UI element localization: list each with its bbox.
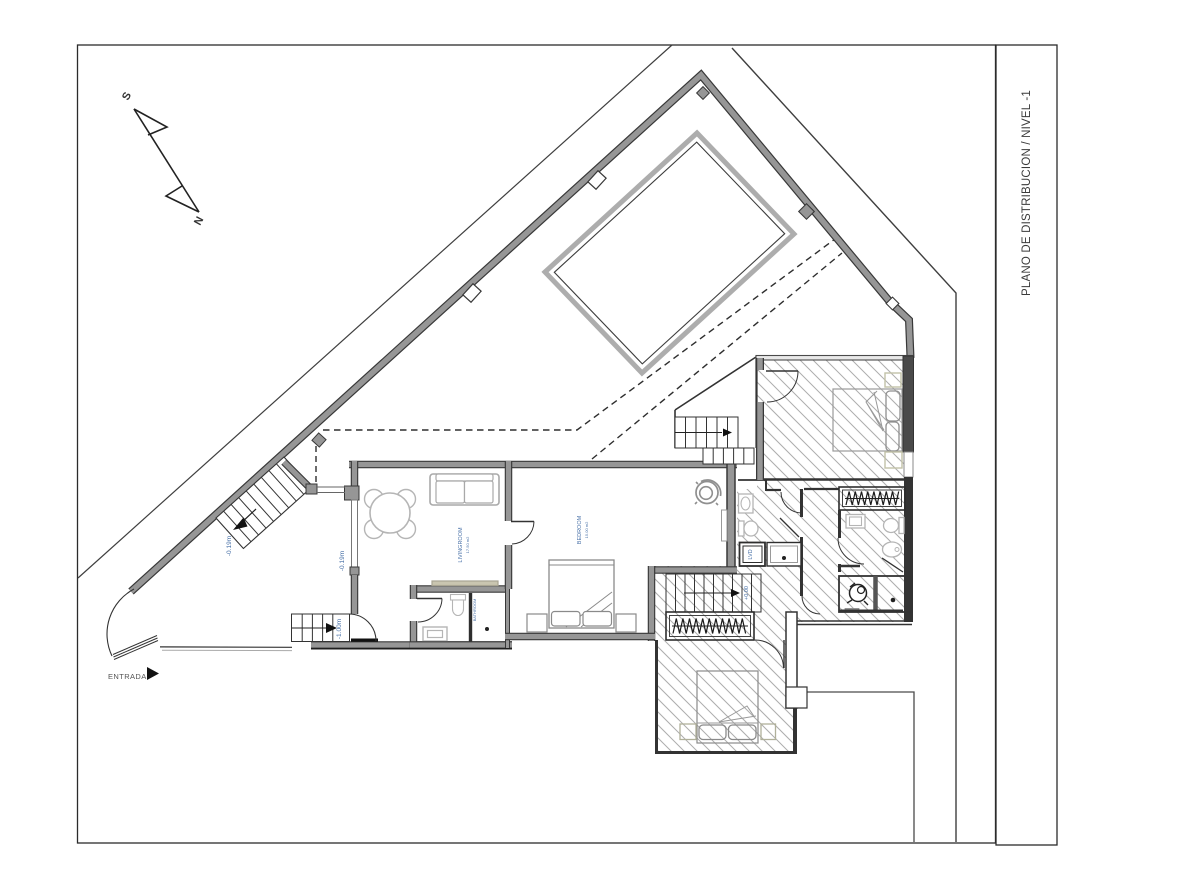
- svg-text:LVD: LVD: [748, 549, 754, 559]
- svg-text:LIVINGROOM: LIVINGROOM: [458, 527, 464, 563]
- svg-text:ENTRADA: ENTRADA: [108, 672, 147, 681]
- svg-text:+0.00: +0.00: [744, 586, 750, 600]
- svg-text:-0.19m: -0.19m: [339, 551, 346, 571]
- svg-text:-0.19m: -0.19m: [226, 536, 233, 556]
- svg-text:17.50 m2: 17.50 m2: [465, 536, 470, 553]
- svg-text:-1.00m: -1.00m: [336, 619, 343, 639]
- svg-text:PLANO DE DISTRIBUCION / NIVEL: PLANO DE DISTRIBUCION / NIVEL -1: [1021, 90, 1033, 296]
- svg-text:BEDROOM: BEDROOM: [577, 515, 583, 544]
- svg-text:15.00 m2: 15.00 m2: [584, 521, 589, 538]
- svg-text:BATHROOM: BATHROOM: [472, 599, 477, 622]
